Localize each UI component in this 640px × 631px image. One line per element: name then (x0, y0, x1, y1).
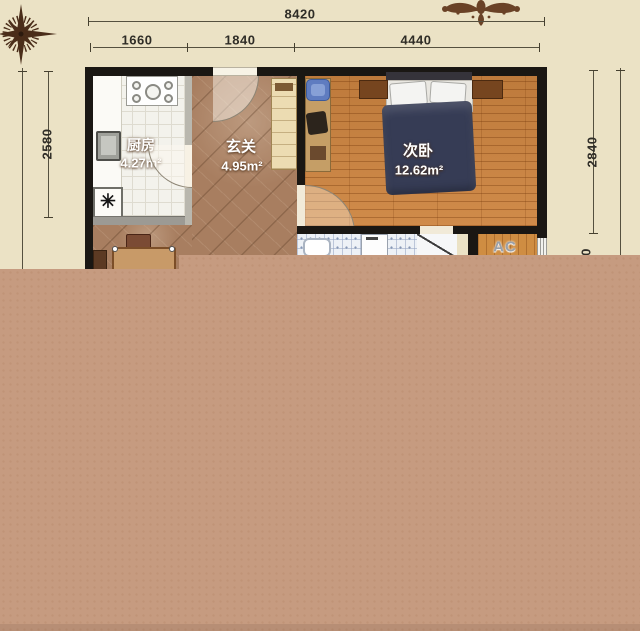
ac-label: AC (493, 239, 517, 256)
dim-right-height: 2840 (585, 137, 600, 168)
nightstand-left (359, 80, 388, 99)
bedroom-label: 次卧 (403, 140, 433, 161)
dim-tick (294, 43, 295, 52)
wall-hall-bedroom (297, 76, 305, 185)
dim-segment-3: 4440 (401, 33, 432, 48)
dim-tick (44, 217, 53, 218)
kitchen-partition-lower (185, 188, 192, 225)
dim-tick (616, 70, 625, 71)
nightstand-right (472, 80, 503, 99)
dim-tick (44, 71, 53, 72)
desk-chair (306, 79, 330, 101)
fridge (96, 131, 121, 161)
closet-item (275, 83, 293, 91)
dim-line-right-outer (620, 68, 621, 260)
floor-plan-image: 8420 1660 1840 4440 2580 2840 0 ✳ 厨房 4.2… (0, 0, 640, 631)
masking-overlay-bottom-band (0, 624, 640, 631)
wall-bedroom-bottom-right (453, 226, 537, 234)
stove-burner (132, 94, 141, 103)
entry-door-opening (213, 67, 257, 76)
hall-closet (271, 78, 297, 170)
dim-tick (589, 233, 598, 234)
desk-item (310, 146, 326, 160)
compass-icon (0, 2, 58, 68)
dim-left-height: 2580 (40, 129, 55, 160)
table-knob (112, 246, 118, 252)
hallway-area: 4.95m² (221, 159, 262, 174)
wall-left (85, 67, 93, 271)
kitchen-lower-cabinet (93, 216, 185, 225)
dim-line-left-outer (22, 68, 23, 270)
ornament-icon (438, 0, 524, 27)
hallway-label: 玄关 (226, 136, 256, 157)
wall-top (85, 67, 547, 76)
bathroom-door-opening (420, 226, 453, 234)
dim-total-width: 8420 (285, 7, 316, 22)
stove (126, 76, 178, 106)
washer-control (366, 237, 378, 240)
floor-drain-symbol: ✳ (100, 190, 116, 213)
dim-tick (544, 17, 545, 26)
floor-drain-box: ✳ (93, 187, 123, 218)
dim-line-total (88, 21, 545, 22)
washing-machine (361, 234, 388, 257)
dim-tick (589, 70, 598, 71)
dim-tick (88, 17, 89, 26)
table-knob (169, 246, 175, 252)
dim-tick (539, 43, 540, 52)
wall-right (537, 67, 547, 258)
dresser (93, 250, 107, 271)
wall-bedroom-bottom-left (297, 226, 420, 234)
dim-line-segments (93, 47, 539, 48)
masking-overlay-main (0, 269, 640, 631)
kitchen-partition-upper (185, 76, 192, 145)
desk-chair-seat (311, 84, 325, 96)
stove-burner (164, 94, 173, 103)
bag-on-desk (306, 111, 329, 136)
dim-segment-2: 1840 (225, 33, 256, 48)
bedroom-area: 12.62m² (395, 163, 443, 178)
stove-burner (164, 81, 173, 90)
fridge-door (101, 136, 116, 155)
dining-table (112, 247, 176, 271)
dim-tick (18, 71, 27, 72)
dim-tick (187, 43, 188, 52)
dim-segment-1: 1660 (122, 33, 153, 48)
dim-tick (90, 43, 91, 52)
stove-burner (132, 81, 141, 90)
stove-burner (145, 84, 161, 100)
